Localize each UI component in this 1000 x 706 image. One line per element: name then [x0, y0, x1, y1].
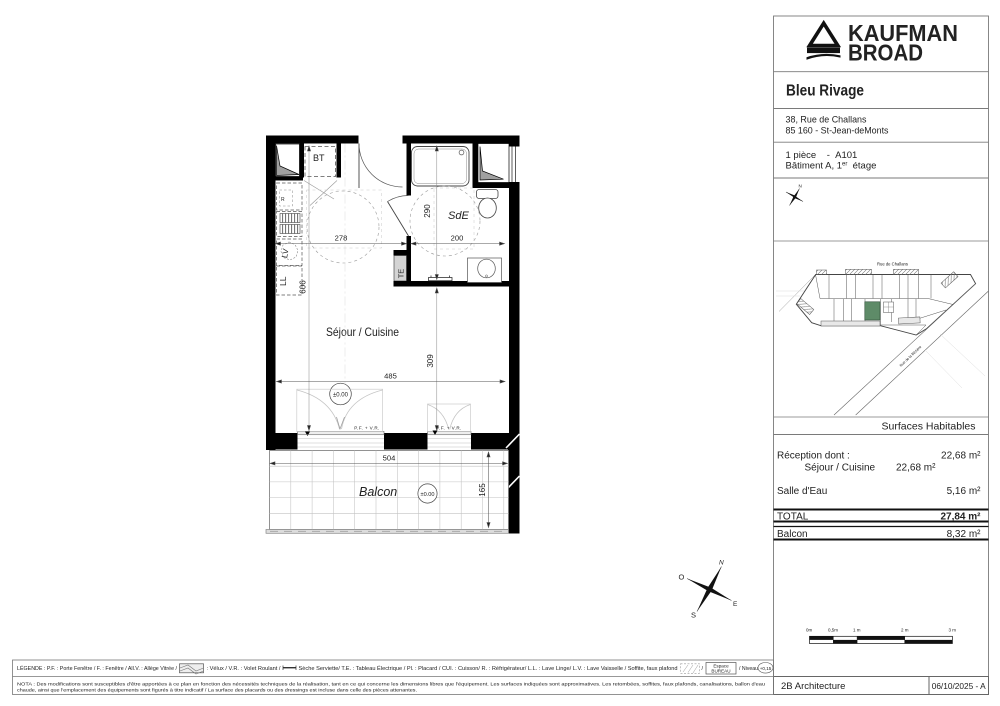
svg-text:BUREAU: BUREAU: [711, 669, 730, 674]
svg-text:1 m: 1 m: [853, 628, 861, 633]
svg-text:1 pièce - A101: 1 pièce - A101: [786, 150, 858, 161]
svg-text:LL: LL: [278, 276, 288, 286]
svg-text:5,16 m²: 5,16 m²: [947, 486, 982, 497]
svg-text:Salle d'Eau: Salle d'Eau: [777, 486, 827, 497]
svg-text:O: O: [679, 573, 685, 582]
svg-text:Séjour / Cuisine: Séjour / Cuisine: [326, 325, 399, 339]
svg-text:SdE: SdE: [448, 210, 469, 222]
svg-text:2B Architecture: 2B Architecture: [781, 681, 845, 692]
svg-text:Balcon: Balcon: [777, 529, 808, 540]
svg-text:BROAD: BROAD: [848, 40, 923, 66]
svg-text:P.F. + V.R.: P.F. + V.R.: [436, 426, 461, 431]
svg-text:±0.00: ±0.00: [333, 393, 349, 399]
svg-text:8,32 m²: 8,32 m²: [947, 529, 982, 540]
svg-text:0m: 0m: [806, 628, 813, 633]
svg-text:85 160 - St-Jean-deMonts: 85 160 - St-Jean-deMonts: [786, 126, 889, 137]
svg-text:Réception dont :: Réception dont :: [777, 451, 850, 462]
svg-text:Bâtiment A, 1er étage: Bâtiment A, 1er étage: [786, 161, 877, 172]
svg-text:+0,15: +0,15: [760, 666, 772, 671]
svg-text:Sèche Serviette/ T.E. : Tablea: Sèche Serviette/ T.E. : Tableau Électriq…: [299, 665, 678, 672]
svg-text:E: E: [733, 601, 738, 608]
svg-text:/: /: [702, 666, 704, 672]
svg-text:LÉGENDE : P.F. : Porte Fenêtre: LÉGENDE : P.F. : Porte Fenêtre / F. : Fe…: [17, 665, 177, 672]
svg-text:2 m: 2 m: [901, 628, 909, 633]
svg-text:606: 606: [299, 280, 308, 294]
svg-text:Espace: Espace: [713, 663, 729, 668]
svg-text:278: 278: [335, 234, 348, 243]
svg-text:165: 165: [478, 483, 487, 497]
svg-text:22,68 m²: 22,68 m²: [941, 451, 981, 462]
svg-text:±0.00: ±0.00: [421, 492, 435, 498]
svg-text:TE: TE: [397, 269, 406, 279]
svg-text:200: 200: [451, 234, 464, 243]
svg-text:chaude, ainsi que l'emplacemen: chaude, ainsi que l'emplacement des équi…: [17, 688, 417, 694]
svg-text:504: 504: [383, 454, 396, 463]
svg-text:22,68 m²: 22,68 m²: [896, 463, 936, 474]
svg-text:Séjour / Cuisine: Séjour / Cuisine: [805, 463, 876, 474]
svg-text:3 m: 3 m: [949, 628, 957, 633]
svg-text:TOTAL: TOTAL: [777, 511, 809, 522]
svg-text:S: S: [691, 611, 696, 620]
svg-text:P.F. + V.R.: P.F. + V.R.: [354, 426, 379, 431]
svg-text:38, Rue de Challans: 38, Rue de Challans: [786, 115, 867, 126]
svg-text:Balcon: Balcon: [359, 485, 397, 499]
svg-text:N: N: [719, 560, 724, 567]
svg-text:Surfaces Habitables: Surfaces Habitables: [882, 421, 976, 433]
svg-text:NOTA : Des modifications son: NOTA : Des modifications sont susceptibl…: [17, 682, 765, 688]
svg-text:309: 309: [426, 354, 435, 368]
svg-text:06/10/2025 - A: 06/10/2025 - A: [932, 681, 986, 691]
svg-text:: Vélux / V.R. : Volet Roulant: : Vélux / V.R. : Volet Roulant /: [207, 666, 281, 672]
svg-text:N: N: [799, 184, 802, 189]
svg-text:/ Niveau: / Niveau: [739, 666, 758, 672]
svg-text:Rue de Challans: Rue de Challans: [877, 262, 908, 267]
svg-text:R: R: [281, 197, 285, 203]
svg-text:BT: BT: [313, 153, 325, 163]
svg-text:0,5m: 0,5m: [828, 628, 838, 633]
svg-text:27,84 m²: 27,84 m²: [940, 511, 981, 522]
svg-text:Bleu Rivage: Bleu Rivage: [786, 83, 864, 100]
svg-text:290: 290: [423, 204, 432, 218]
svg-text:485: 485: [384, 372, 397, 381]
